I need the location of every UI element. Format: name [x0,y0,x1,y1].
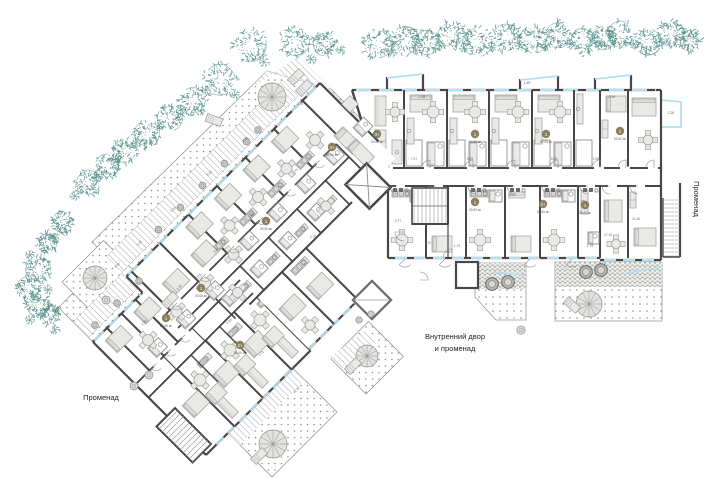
svg-text:1.73: 1.73 [454,244,461,248]
svg-text:00.00 м²: 00.00 м² [540,140,552,144]
svg-text:00.00 м²: 00.00 м² [469,208,481,212]
svg-text:4.77: 4.77 [395,219,401,223]
svg-text:2+: 2+ [541,202,546,207]
svg-text:1.98: 1.98 [419,95,426,99]
svg-text:5.25: 5.25 [467,157,473,161]
svg-text:00.00 м²: 00.00 м² [195,294,207,298]
svg-text:00.00 м²: 00.00 м² [469,140,481,144]
svg-text:1.79: 1.79 [587,244,594,248]
svg-text:00.00 м²: 00.00 м² [537,210,549,214]
svg-text:3+: 3+ [330,145,335,150]
svg-text:Променад: Променад [83,393,119,402]
svg-text:11.26: 11.26 [632,217,640,221]
svg-text:5.26: 5.26 [551,157,557,161]
svg-text:2.90: 2.90 [609,95,616,99]
svg-text:2+: 2+ [238,343,243,348]
svg-text:2.26: 2.26 [668,111,675,115]
svg-text:Внутренний двор: Внутренний двор [425,332,485,341]
svg-text:00.00 м²: 00.00 м² [614,137,626,141]
svg-text:2.79: 2.79 [297,102,304,106]
svg-text:17.15: 17.15 [604,233,612,237]
svg-text:00.00 м²: 00.00 м² [326,153,338,157]
svg-text:00.00 м²: 00.00 м² [371,140,383,144]
svg-text:4.70: 4.70 [425,241,431,245]
svg-text:00.00 м²: 00.00 м² [160,324,172,328]
svg-text:00.00 м²: 00.00 м² [260,227,272,231]
svg-text:1.69: 1.69 [524,81,531,85]
svg-text:1.58: 1.58 [593,157,599,161]
svg-text:3+: 3+ [375,132,380,137]
svg-text:10.02: 10.02 [508,193,516,197]
svg-text:Променад: Променад [692,181,701,217]
svg-text:и променад: и променад [435,344,476,353]
svg-text:00.00 м²: 00.00 м² [234,351,246,355]
svg-text:7.07: 7.07 [411,157,417,161]
svg-text:00.00 м²: 00.00 м² [579,211,591,215]
svg-text:2.79: 2.79 [310,235,317,239]
